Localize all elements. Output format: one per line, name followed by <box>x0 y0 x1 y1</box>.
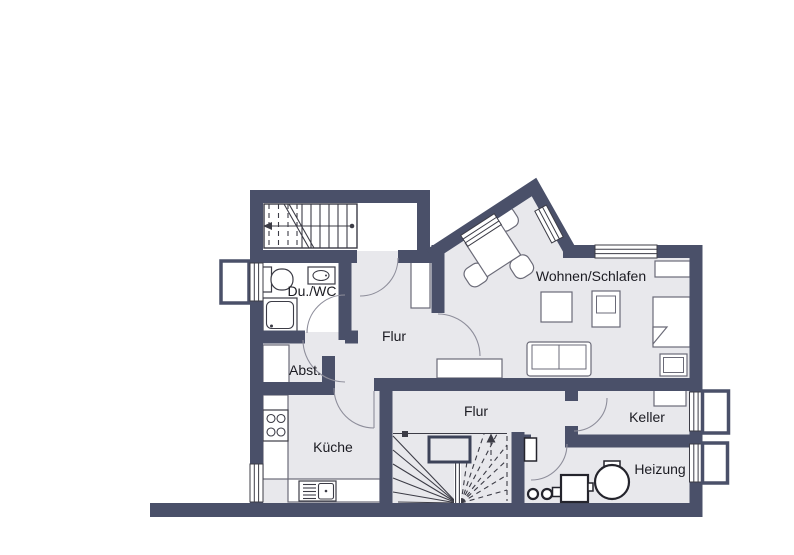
staircase-upper <box>263 204 357 248</box>
room-label-flur-upper: Flur <box>382 328 406 344</box>
window-right-lower <box>690 444 703 482</box>
storage-shelf <box>263 345 289 384</box>
coffee-table <box>541 292 572 322</box>
window-box-left <box>221 261 249 303</box>
connection-dot <box>542 489 552 499</box>
armchair <box>592 291 620 327</box>
dresser <box>655 261 690 277</box>
hall-wardrobe <box>411 262 430 308</box>
nightstand <box>660 354 687 376</box>
floor-plan: Du./WC Flur Wohnen/Schlafen Abst. Küche … <box>0 0 794 555</box>
hall-sideboard <box>437 359 502 378</box>
window-box-right-lower <box>703 443 728 483</box>
window-left-lower <box>250 464 263 502</box>
room-label-du-wc: Du./WC <box>288 283 337 299</box>
room-label-abst: Abst. <box>289 362 321 378</box>
shower-icon <box>263 298 297 332</box>
sink-icon <box>308 267 335 284</box>
stove-icon <box>263 410 288 441</box>
room-label-wohnen-schlafen: Wohnen/Schlafen <box>536 268 646 284</box>
stair-landing <box>429 437 470 462</box>
room-label-keller: Keller <box>629 409 665 425</box>
cellar-shelf <box>654 390 686 406</box>
floor-plan-drawing: Du./WC Flur Wohnen/Schlafen Abst. Küche … <box>0 0 794 555</box>
room-label-flur-lower: Flur <box>464 403 488 419</box>
room-label-heizung: Heizung <box>634 461 685 477</box>
stair-post <box>402 431 408 437</box>
window-box-right-upper <box>703 391 729 433</box>
sofa <box>527 342 591 376</box>
chimney-duct <box>525 438 537 461</box>
connection-dot <box>528 489 538 499</box>
window-left-upper <box>250 263 263 301</box>
window-top <box>595 245 657 258</box>
kitchen-sink-icon <box>299 481 336 501</box>
window-right-upper <box>690 392 703 431</box>
room-label-kueche: Küche <box>313 439 353 455</box>
bed <box>653 297 690 347</box>
